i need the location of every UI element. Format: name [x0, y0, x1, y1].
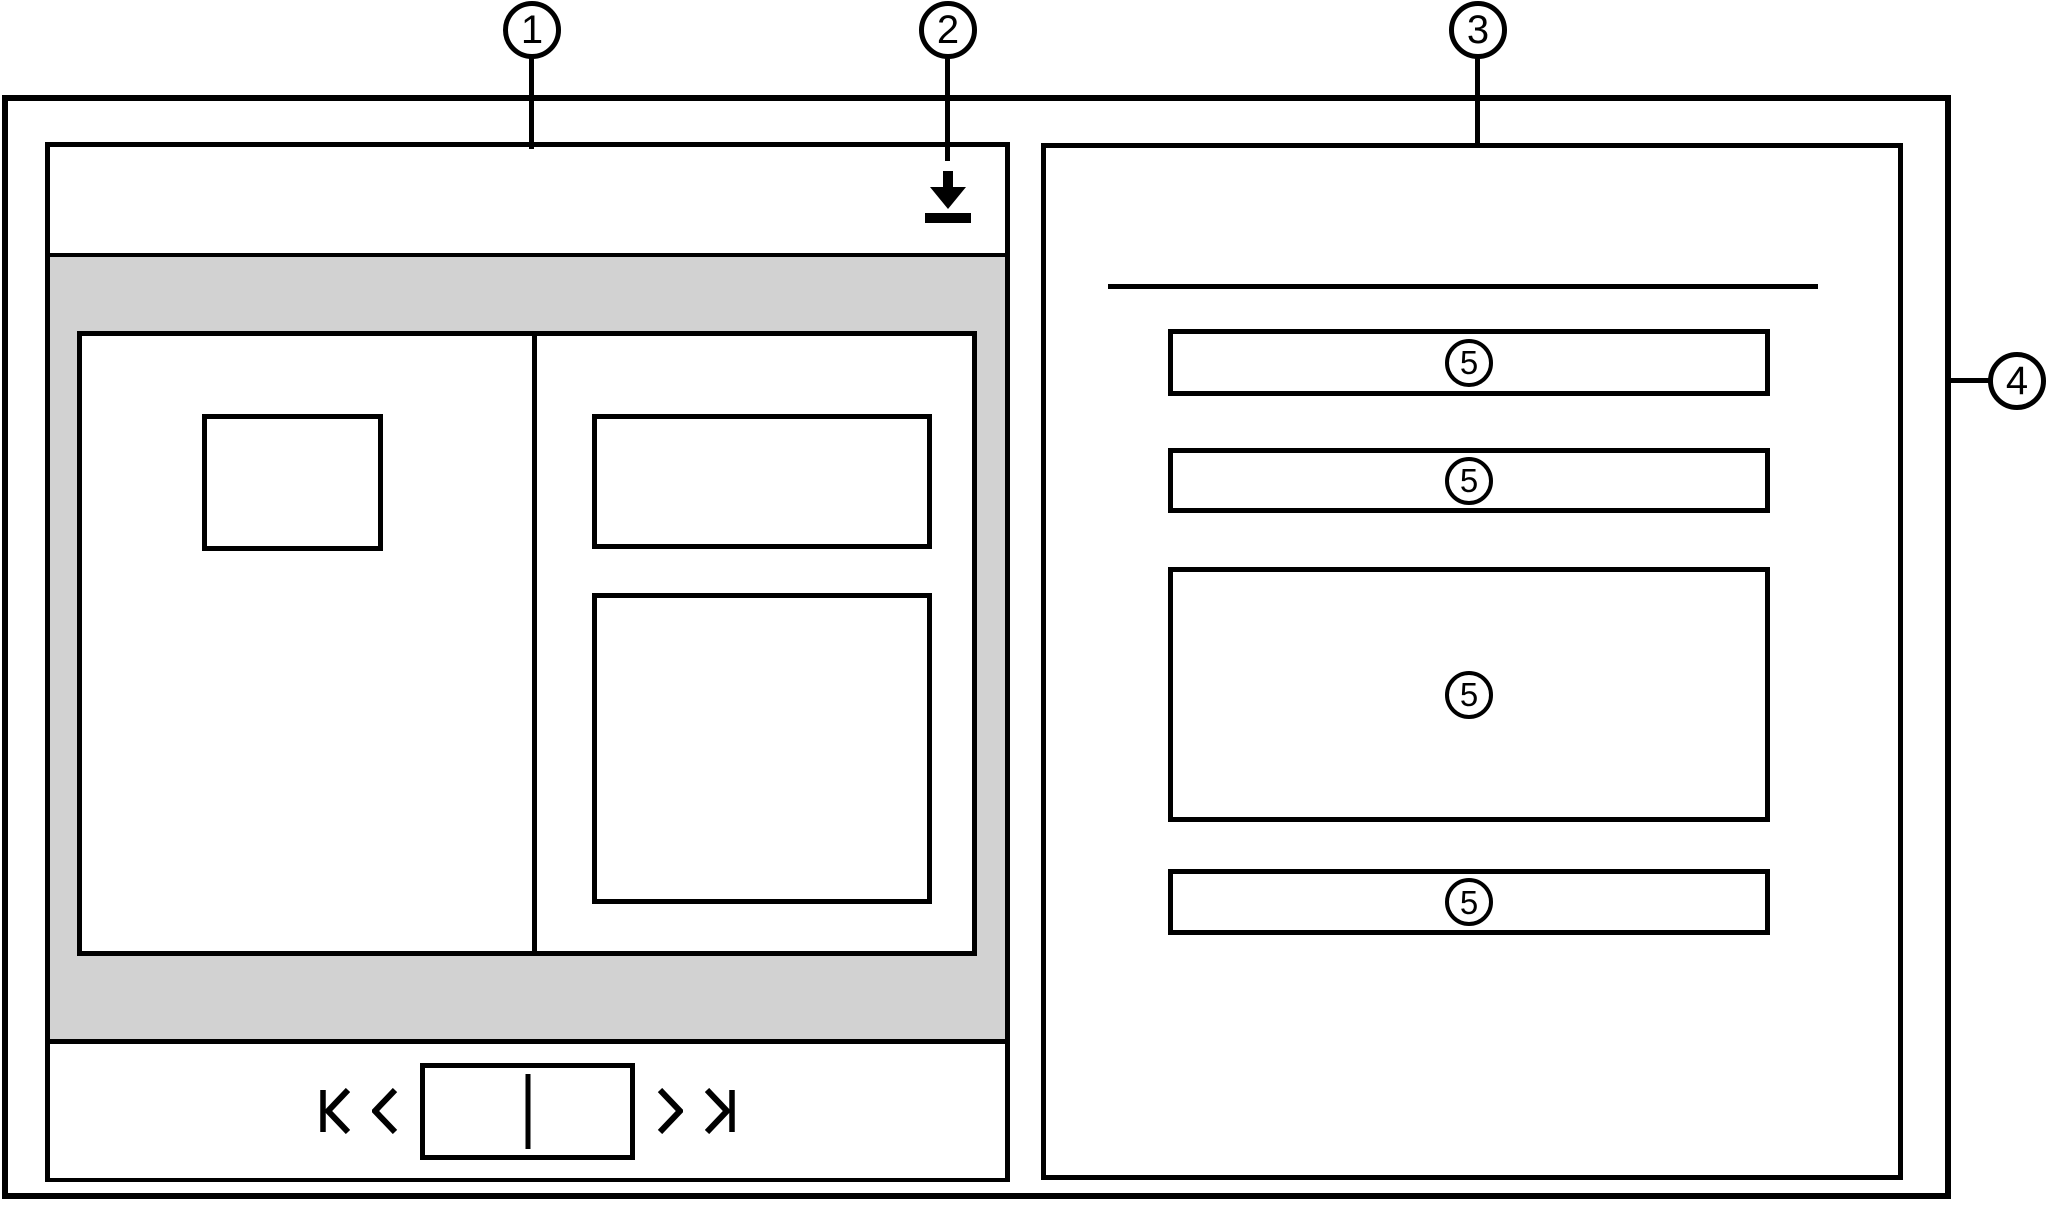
page-spread-indicator[interactable]	[420, 1063, 635, 1160]
viewer-toolbar	[50, 147, 1005, 257]
callout-3-label: 3	[1467, 10, 1489, 50]
first-page-button[interactable]	[320, 1088, 350, 1134]
previous-page-button[interactable]	[372, 1088, 398, 1134]
callout-1-leader-line	[529, 57, 534, 149]
callout-5-label: 5	[1460, 886, 1478, 919]
callout-1-marker: 1	[503, 1, 561, 59]
panel-title-rule	[1108, 284, 1818, 289]
viewer-window	[45, 142, 1010, 1182]
right-page-placeholder-top	[592, 414, 932, 549]
callout-5-badge: 5	[1445, 457, 1493, 505]
callout-3-marker: 3	[1449, 1, 1507, 59]
page-navigation-bar	[50, 1039, 1005, 1178]
callout-5-label: 5	[1460, 464, 1478, 497]
callout-1-label: 1	[521, 10, 543, 50]
detail-field-row: 5	[1168, 448, 1770, 513]
callout-2-label: 2	[937, 10, 959, 50]
download-button[interactable]	[923, 171, 973, 223]
callout-2-leader-line	[945, 57, 950, 161]
callout-2-marker: 2	[919, 1, 977, 59]
figure-canvas: 5 5 5 5 1 2 3 4	[0, 0, 2048, 1207]
callout-3-leader-line	[1475, 57, 1480, 146]
viewer-content-area	[50, 257, 1005, 1039]
last-page-button[interactable]	[705, 1088, 735, 1134]
right-page-placeholder-bottom	[592, 593, 932, 904]
detail-field-large: 5	[1168, 567, 1770, 822]
previous-page-icon	[372, 1088, 398, 1134]
callout-4-marker: 4	[1988, 352, 2046, 410]
details-panel: 5 5 5 5	[1041, 143, 1903, 1180]
next-page-button[interactable]	[657, 1088, 683, 1134]
callout-5-badge: 5	[1445, 339, 1493, 387]
first-page-icon	[320, 1088, 350, 1134]
download-icon	[923, 171, 973, 223]
page-spread-divider	[532, 336, 537, 951]
callout-4-leader-line	[1948, 378, 1990, 383]
callout-5-label: 5	[1460, 678, 1478, 711]
callout-5-badge: 5	[1445, 878, 1493, 926]
page-spread	[77, 331, 977, 956]
callout-5-label: 5	[1460, 346, 1478, 379]
left-page-placeholder	[202, 414, 383, 551]
detail-field-row: 5	[1168, 869, 1770, 935]
next-page-icon	[657, 1088, 683, 1134]
page-indicator-divider	[525, 1074, 530, 1149]
callout-5-badge: 5	[1445, 671, 1493, 719]
callout-4-label: 4	[2006, 361, 2028, 401]
last-page-icon	[705, 1088, 735, 1134]
detail-field-row: 5	[1168, 329, 1770, 396]
